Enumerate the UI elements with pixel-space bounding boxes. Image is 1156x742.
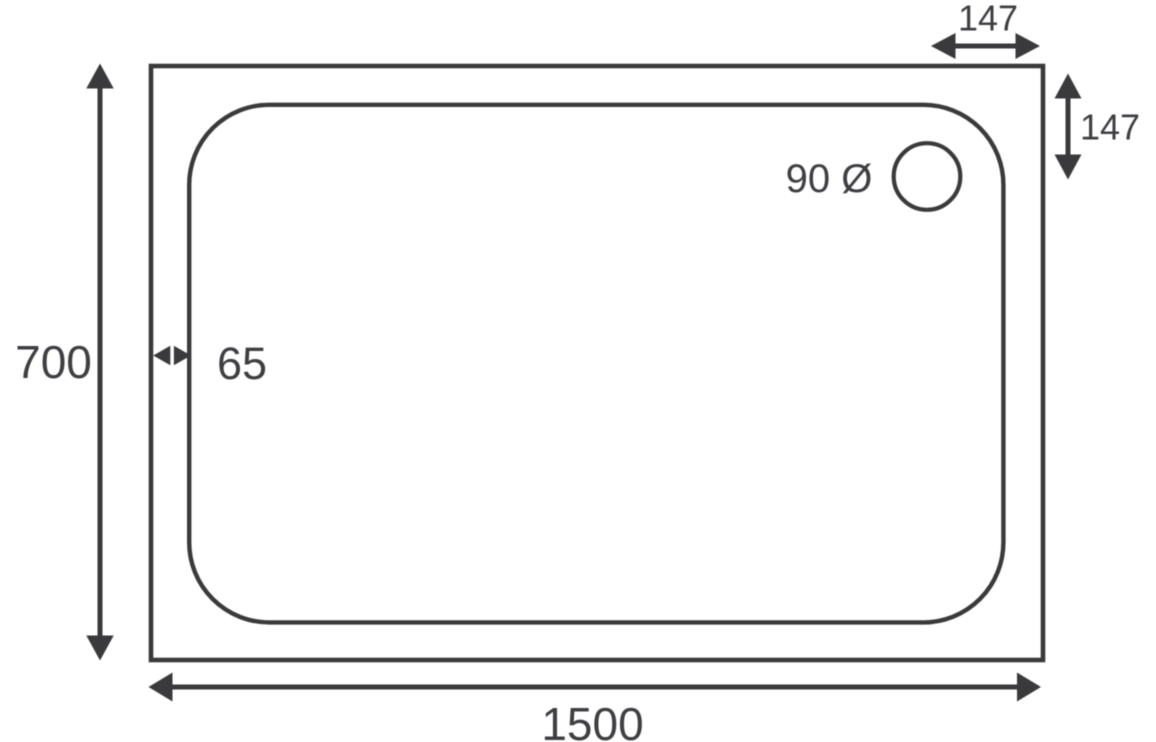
svg-text:147: 147: [958, 0, 1018, 39]
svg-text:65: 65: [217, 338, 267, 389]
svg-text:1500: 1500: [541, 698, 643, 742]
svg-text:700: 700: [15, 336, 92, 388]
svg-text:90 Ø: 90 Ø: [786, 157, 873, 201]
svg-text:147: 147: [1080, 107, 1140, 148]
